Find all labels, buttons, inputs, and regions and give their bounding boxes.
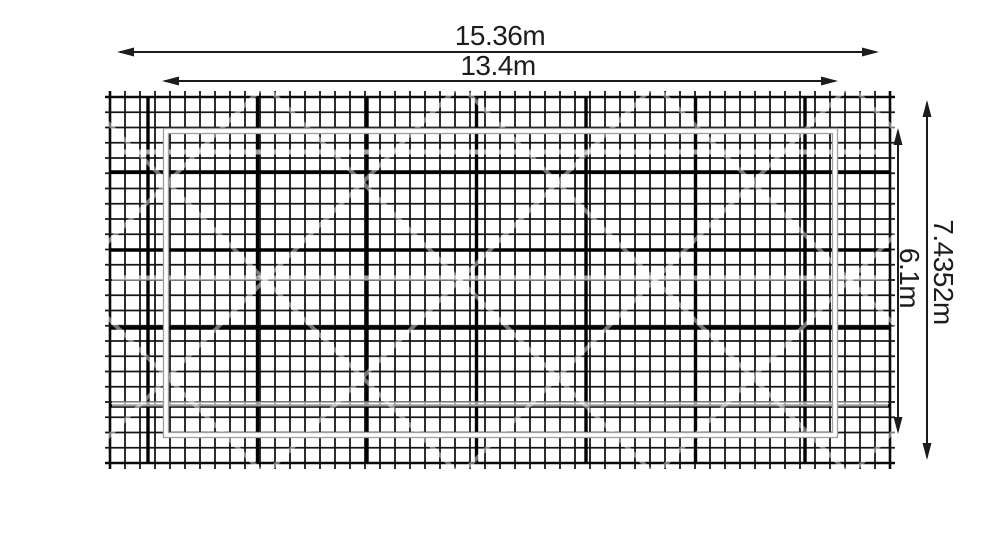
inner-height-dimension-label: 6.1m — [894, 233, 924, 323]
inner-width-dimension-label: 13.4m — [398, 51, 598, 81]
led-screen-dimension-drawing: 15.36m 13.4m 7.4352m 6.1m — [0, 0, 1000, 560]
outer-width-dimension-label: 15.36m — [400, 21, 600, 51]
outer-height-dimension-label: 7.4352m — [928, 187, 958, 357]
watermark-overlay — [0, 0, 1000, 560]
grid-drawing-svg — [0, 0, 1000, 560]
